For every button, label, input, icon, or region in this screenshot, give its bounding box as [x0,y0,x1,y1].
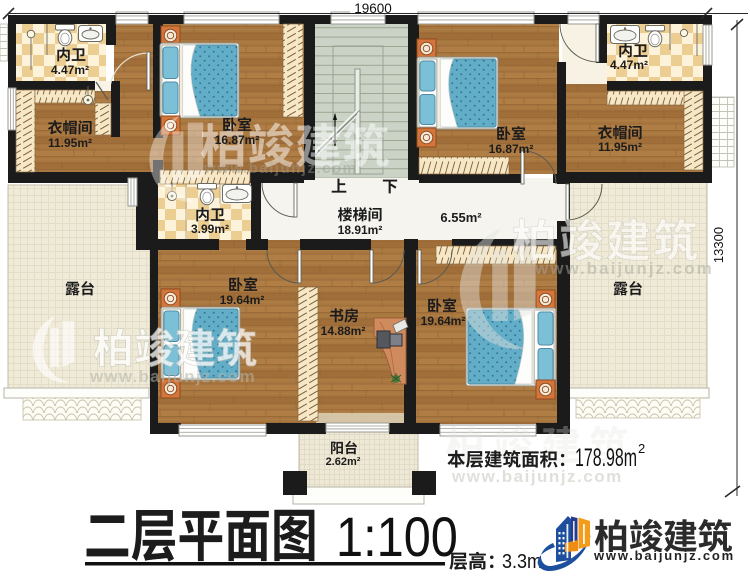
svg-text:www.baijunjz.com: www.baijunjz.com [593,548,735,563]
svg-text:19.64m²: 19.64m² [220,293,265,307]
svg-text:16.87m²: 16.87m² [489,142,534,156]
svg-text:4.47m²: 4.47m² [51,63,89,77]
svg-text:6.55m²: 6.55m² [440,210,482,225]
svg-text:16.87m²: 16.87m² [215,133,260,147]
svg-text:www.baijunjz.com: www.baijunjz.com [89,367,256,386]
svg-text:3.3m: 3.3m [502,551,542,573]
svg-text:1:100: 1:100 [336,506,458,569]
svg-text:4.47m²: 4.47m² [610,58,648,72]
svg-text:11.95m²: 11.95m² [48,136,92,150]
svg-text:www.baijunjz.com: www.baijunjz.com [203,160,357,177]
svg-text:14.88m²: 14.88m² [321,324,366,338]
svg-text:178.98m: 178.98m [575,444,637,472]
svg-text:www.baijunjz.com: www.baijunjz.com [534,259,714,278]
svg-text:19600: 19600 [354,1,392,16]
svg-text:2: 2 [638,441,645,456]
svg-text:3.99m²: 3.99m² [191,222,229,236]
svg-text:2.62m²: 2.62m² [326,456,361,468]
svg-text:11.95m²: 11.95m² [598,140,642,154]
svg-text:13300: 13300 [711,227,726,263]
svg-text:18.91m²: 18.91m² [338,223,383,237]
svg-text:19.64m²: 19.64m² [421,314,466,328]
